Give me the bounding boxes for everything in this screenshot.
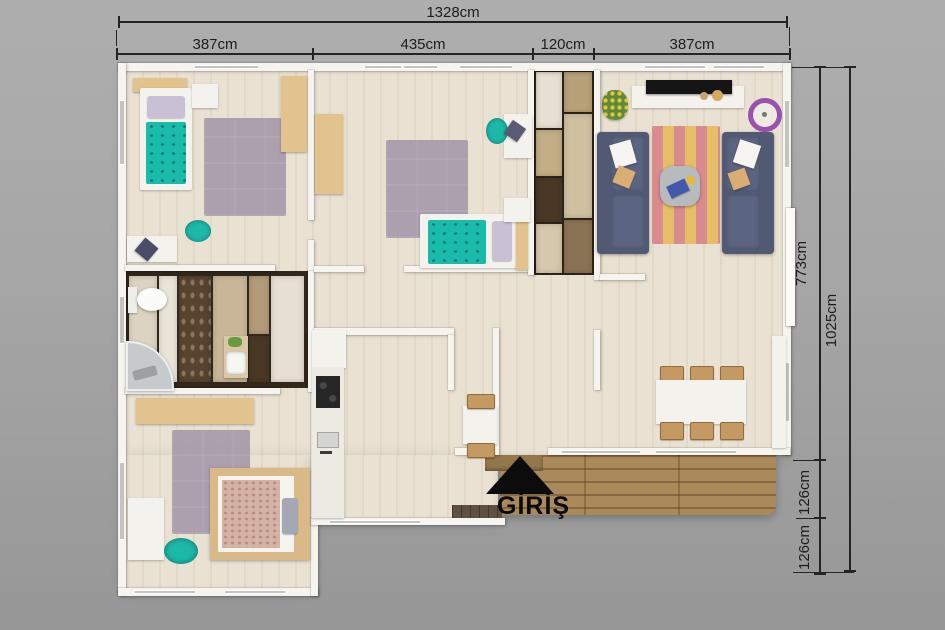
dim-ext-line	[116, 30, 117, 46]
window	[225, 590, 285, 594]
wall-bedroom2-bottom-a	[314, 266, 364, 272]
stone-tile	[564, 72, 592, 112]
toilet-bowl	[137, 288, 167, 311]
dim-total-width-line	[118, 21, 788, 23]
sofa-cushion	[611, 194, 645, 249]
dining-chair	[660, 422, 684, 440]
dining-chair	[720, 422, 744, 440]
bathroom-tile	[249, 276, 269, 334]
purple-lamp-center	[762, 112, 767, 117]
bedroom1-wardrobe	[281, 76, 307, 152]
stone-tile	[536, 130, 562, 176]
dim-total-width-label: 1328cm	[118, 4, 788, 21]
stone-tile	[564, 220, 592, 273]
bed1-blanket	[146, 122, 186, 184]
bathroom-tile-dark-marble	[179, 276, 211, 382]
dining-chair	[690, 422, 714, 440]
kitchen-cooktop	[316, 376, 340, 408]
kitchen-table	[463, 406, 497, 444]
console-decor	[712, 90, 723, 101]
dining-table	[656, 380, 746, 424]
stone-tile	[536, 72, 562, 128]
floor-plan-image: 1328cm 387cm 435cm 120cm 387cm 773cm 126…	[0, 0, 945, 630]
bed3-pillow	[282, 498, 298, 534]
stone-tile	[564, 114, 592, 218]
side-door	[786, 208, 795, 326]
dim-tick	[593, 48, 595, 60]
window	[120, 100, 124, 165]
dim-seg3-label: 120cm	[527, 36, 599, 53]
bathroom-plant	[228, 337, 242, 347]
wall-stone-strip-left	[528, 70, 534, 275]
dim-segments-line	[117, 53, 791, 55]
dim-right-total-label: 1025cm	[823, 294, 840, 347]
kitchen-chair	[467, 394, 495, 409]
stone-tile	[536, 178, 562, 222]
bed1-nightstand	[192, 84, 218, 108]
sofa-cushion	[726, 194, 760, 249]
wall-bedroom1-bedroom2	[308, 70, 314, 220]
dim-right-outer-line	[849, 67, 851, 572]
window	[656, 450, 736, 454]
dim-ext-line	[792, 67, 854, 68]
dim-tick	[786, 16, 788, 28]
dim-right-seg2-label: 126cm	[796, 525, 813, 570]
dim-ext-line	[793, 460, 823, 461]
wall-living-stub	[600, 274, 645, 280]
window	[195, 65, 258, 69]
bathroom-tile	[271, 276, 304, 382]
dim-right-inner-line	[819, 67, 821, 575]
stone-tile	[536, 224, 562, 273]
window	[404, 65, 437, 69]
kitchen-sink	[317, 432, 339, 448]
window	[785, 100, 789, 168]
kitchen-faucet	[320, 451, 332, 454]
entrance-label: GİRİŞ	[497, 492, 570, 521]
bathroom-sink	[226, 352, 246, 374]
bedroom3-pouf	[164, 538, 198, 564]
kitchen-upper-cabinet	[312, 330, 346, 368]
bedroom2-wardrobe	[315, 114, 343, 194]
window	[120, 462, 124, 540]
window	[365, 65, 401, 69]
dim-right-seg1-label: 126cm	[796, 470, 813, 515]
dim-ext-line	[796, 518, 824, 519]
dim-tick	[312, 48, 314, 60]
dim-tick	[814, 573, 826, 575]
bedroom2-nightstand	[504, 198, 530, 222]
up-triangle-icon	[486, 456, 554, 494]
window	[645, 65, 705, 69]
wall-kitchen-right-stub	[448, 335, 454, 390]
bed2-pillow	[492, 221, 512, 261]
dim-seg2-label: 435cm	[313, 36, 533, 53]
stone-feature-wall	[534, 70, 594, 275]
dining-side-cabinet	[772, 336, 786, 448]
entry-doormat	[452, 505, 502, 518]
bed3-blanket	[222, 480, 280, 548]
bedroom3-dresser	[128, 498, 164, 560]
console-decor	[700, 92, 708, 100]
living-plant	[602, 90, 628, 120]
window	[135, 590, 195, 594]
bedroom3-wardrobe	[136, 398, 254, 424]
window	[120, 296, 124, 344]
dim-ext-line	[789, 27, 790, 46]
window	[714, 65, 764, 69]
dim-tick	[532, 48, 534, 60]
dim-seg1-label: 387cm	[117, 36, 313, 53]
toilet-tank	[128, 287, 137, 313]
bathroom-tile-dark	[249, 336, 269, 382]
window	[562, 450, 640, 454]
wall-dining-left	[594, 330, 600, 390]
dim-tick	[118, 16, 120, 28]
bed2-blanket	[428, 220, 486, 264]
window	[460, 65, 512, 69]
dim-right-main-label: 773cm	[793, 241, 810, 286]
bed1-pillow	[147, 96, 185, 118]
dim-tick	[789, 48, 791, 60]
window	[330, 520, 420, 524]
wall-bathroom-top	[125, 265, 275, 271]
dim-ext-line	[793, 572, 854, 573]
coffee-table-decor	[686, 176, 695, 185]
dim-seg4-label: 387cm	[594, 36, 790, 53]
bedroom1-chair	[185, 220, 211, 242]
dim-tick	[116, 48, 118, 60]
bedroom1-rug	[204, 118, 286, 216]
